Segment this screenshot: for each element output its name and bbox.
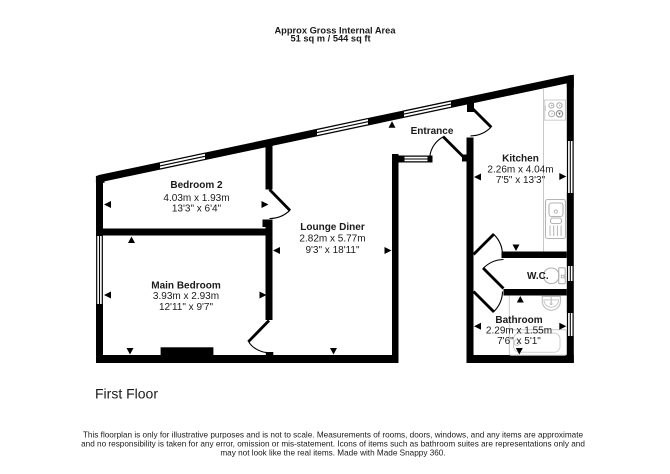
svg-text:Entrance: Entrance	[411, 126, 454, 137]
svg-text:Bathroom: Bathroom	[495, 315, 542, 326]
svg-text:2.26m x 4.04m: 2.26m x 4.04m	[487, 164, 553, 175]
svg-text:Kitchen: Kitchen	[502, 154, 539, 165]
svg-text:13'3" x 6'4": 13'3" x 6'4"	[172, 204, 222, 215]
svg-text:Bedroom 2: Bedroom 2	[170, 180, 223, 191]
svg-text:and no responsibility is taken: and no responsibility is taken for any e…	[81, 440, 585, 449]
svg-text:3.93m x 2.93m: 3.93m x 2.93m	[153, 291, 219, 302]
svg-text:Main Bedroom: Main Bedroom	[151, 280, 221, 291]
svg-text:This floorplan is only for ill: This floorplan is only for illustrative …	[83, 431, 584, 440]
svg-text:2.29m x 1.55m: 2.29m x 1.55m	[486, 325, 552, 336]
svg-text:12'11" x 9'7": 12'11" x 9'7"	[159, 302, 214, 313]
svg-text:4.03m x 1.93m: 4.03m x 1.93m	[163, 193, 229, 204]
svg-text:Lounge Diner: Lounge Diner	[300, 222, 365, 233]
svg-text:7'5" x 13'3": 7'5" x 13'3"	[496, 175, 546, 186]
svg-text:W.C.: W.C.	[527, 271, 549, 282]
svg-text:may not look like the real ite: may not look like the real items. Made w…	[220, 449, 445, 458]
svg-text:9'3" x 18'11": 9'3" x 18'11"	[305, 245, 360, 256]
svg-text:2.82m x 5.77m: 2.82m x 5.77m	[299, 234, 365, 245]
svg-text:7'6" x 5'1": 7'6" x 5'1"	[497, 336, 541, 347]
svg-text:51 sq m / 544 sq ft: 51 sq m / 544 sq ft	[290, 34, 370, 44]
svg-text:First Floor: First Floor	[95, 385, 158, 401]
